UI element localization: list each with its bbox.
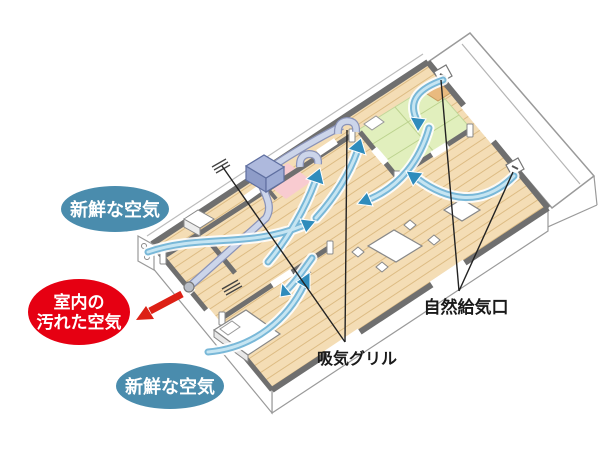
intake-grill-label: 吸気グリル <box>317 349 397 368</box>
balcony-corner-edge <box>594 176 597 205</box>
ventilation-diagram: 新鮮な空気 室内の 汚れた空気 新鮮な空気 吸気グリル 自然給気口 <box>0 0 600 449</box>
ventilation-diagram-stage: 新鮮な空気 室内の 汚れた空気 新鮮な空気 吸気グリル 自然給気口 <box>0 0 600 449</box>
grill-slot <box>214 162 228 170</box>
fresh-air-bottom-label: 新鮮な空気 <box>125 376 215 397</box>
grill-slot <box>212 159 226 167</box>
exhaust-arrow-shaft <box>150 294 182 311</box>
wall-post <box>467 124 473 137</box>
grill-slot <box>216 165 230 173</box>
dirty-air-label-line2: 汚れた空気 <box>37 312 122 332</box>
natural-air-inlet-label: 自然給気口 <box>424 297 509 317</box>
dirty-air-label-line1: 室内の <box>54 292 105 312</box>
wall-post <box>327 241 333 254</box>
dirty-air-oval <box>28 279 130 345</box>
exhaust-fan-ball <box>184 282 194 292</box>
fresh-air-top-label: 新鮮な空気 <box>70 199 160 220</box>
